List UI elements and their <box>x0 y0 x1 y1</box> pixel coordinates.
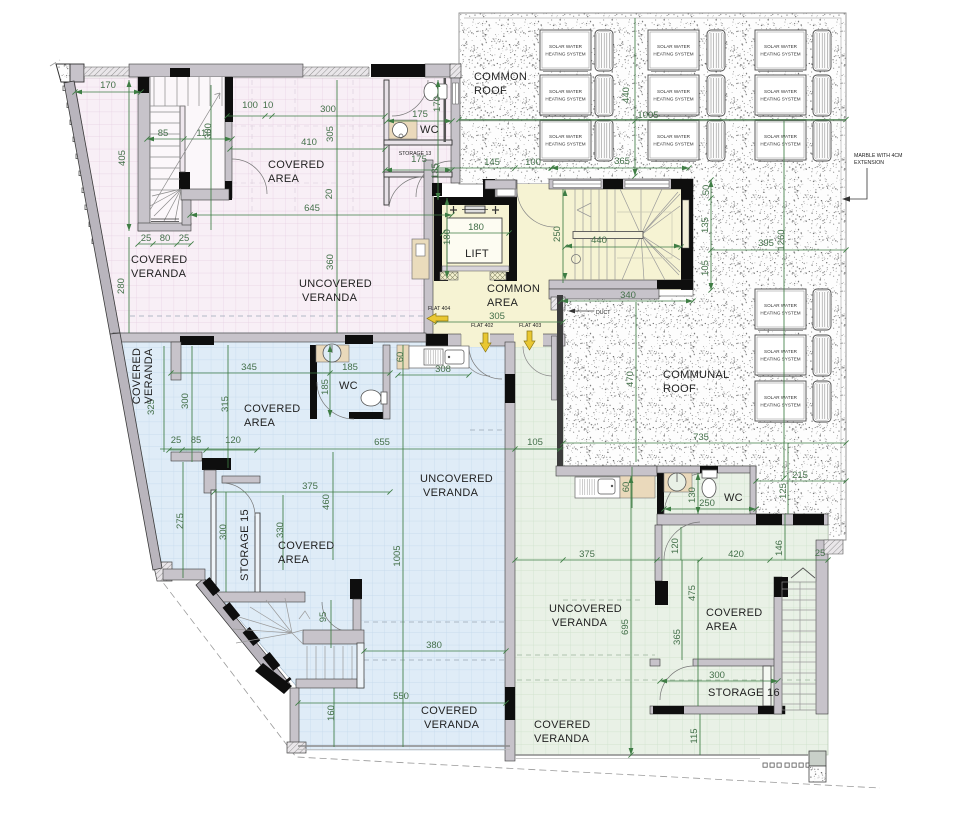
svg-text:250: 250 <box>699 498 715 509</box>
svg-text:95: 95 <box>318 612 329 623</box>
svg-text:300: 300 <box>203 123 214 139</box>
svg-text:50: 50 <box>701 185 712 196</box>
svg-text:EXTENSION: EXTENSION <box>854 160 884 166</box>
svg-text:10: 10 <box>263 100 274 111</box>
svg-text:COMMON: COMMON <box>487 283 540 295</box>
svg-text:AREA: AREA <box>244 417 276 429</box>
svg-text:375: 375 <box>302 481 318 492</box>
svg-text:HEATING SYSTEM: HEATING SYSTEM <box>760 357 800 362</box>
svg-text:185: 185 <box>342 362 358 373</box>
svg-text:COVERED: COVERED <box>706 607 763 619</box>
svg-text:135: 135 <box>700 217 711 233</box>
svg-text:460: 460 <box>321 494 332 510</box>
svg-text:AREA: AREA <box>268 173 300 185</box>
svg-text:420: 420 <box>728 549 744 560</box>
svg-text:VERANDA: VERANDA <box>143 348 155 404</box>
svg-text:HEATING SYSTEM: HEATING SYSTEM <box>545 52 585 57</box>
svg-text:60: 60 <box>395 352 406 363</box>
svg-text:300: 300 <box>709 670 725 681</box>
svg-text:COVERED: COVERED <box>244 403 301 415</box>
svg-text:SOLAR WATER: SOLAR WATER <box>549 134 583 139</box>
svg-text:475: 475 <box>687 585 698 601</box>
svg-text:HEATING SYSTEM: HEATING SYSTEM <box>653 142 693 147</box>
svg-text:175: 175 <box>412 109 428 120</box>
svg-text:WC: WC <box>420 124 439 136</box>
svg-text:735: 735 <box>693 432 709 443</box>
svg-text:STORAGE 13: STORAGE 13 <box>399 151 432 157</box>
svg-text:315: 315 <box>220 396 231 412</box>
svg-text:305: 305 <box>325 126 336 142</box>
svg-text:130: 130 <box>687 487 698 503</box>
svg-text:FLAT 402: FLAT 402 <box>471 323 493 329</box>
svg-text:250: 250 <box>552 226 563 242</box>
svg-text:HEATING SYSTEM: HEATING SYSTEM <box>653 52 693 57</box>
svg-text:300: 300 <box>320 104 336 115</box>
svg-text:146: 146 <box>774 540 785 556</box>
svg-text:AREA: AREA <box>487 297 519 309</box>
svg-text:345: 345 <box>241 362 257 373</box>
svg-text:LIFT: LIFT <box>465 248 489 260</box>
svg-text:170: 170 <box>432 96 443 112</box>
svg-text:275: 275 <box>175 513 186 529</box>
svg-text:655: 655 <box>374 437 390 448</box>
svg-text:25: 25 <box>815 548 826 559</box>
svg-text:COVERED: COVERED <box>131 254 188 266</box>
svg-text:330: 330 <box>275 522 286 538</box>
svg-text:1005: 1005 <box>392 545 403 566</box>
svg-text:280: 280 <box>116 278 127 294</box>
svg-text:120: 120 <box>670 538 681 554</box>
svg-text:80: 80 <box>160 233 171 244</box>
svg-text:185: 185 <box>320 379 331 395</box>
svg-text:365: 365 <box>672 629 683 645</box>
svg-text:100: 100 <box>242 100 258 111</box>
svg-text:MARBLE WITH 4CM: MARBLE WITH 4CM <box>854 153 902 159</box>
svg-text:HEATING SYSTEM: HEATING SYSTEM <box>760 311 800 316</box>
svg-text:WC: WC <box>339 380 358 392</box>
svg-text:305: 305 <box>489 311 505 322</box>
svg-text:UNCOVERED: UNCOVERED <box>549 603 622 615</box>
svg-text:395: 395 <box>758 238 774 249</box>
svg-text:180: 180 <box>468 222 484 233</box>
svg-text:VERANDA: VERANDA <box>424 719 480 731</box>
svg-text:405: 405 <box>117 150 128 166</box>
svg-text:85: 85 <box>158 128 169 139</box>
svg-text:DUCT: DUCT <box>596 310 611 316</box>
svg-text:125: 125 <box>778 483 789 499</box>
svg-text:SOLAR WATER: SOLAR WATER <box>657 44 691 49</box>
svg-text:SOLAR WATER: SOLAR WATER <box>764 395 798 400</box>
svg-text:105: 105 <box>700 260 711 276</box>
svg-text:STORAGE 15: STORAGE 15 <box>239 509 251 581</box>
svg-text:695: 695 <box>620 619 631 635</box>
svg-text:SOLAR WATER: SOLAR WATER <box>657 134 691 139</box>
svg-text:SOLAR WATER: SOLAR WATER <box>764 89 798 94</box>
svg-text:25: 25 <box>179 233 190 244</box>
svg-text:ROOF: ROOF <box>474 85 507 97</box>
svg-text:180: 180 <box>442 229 453 245</box>
svg-text:1260: 1260 <box>776 229 787 250</box>
svg-text:HEATING SYSTEM: HEATING SYSTEM <box>760 403 800 408</box>
svg-text:FLAT 403: FLAT 403 <box>519 323 541 329</box>
svg-text:COMMON: COMMON <box>474 71 527 83</box>
svg-text:308: 308 <box>435 364 451 375</box>
svg-text:470: 470 <box>625 371 636 387</box>
svg-text:UNCOVERED: UNCOVERED <box>420 473 493 485</box>
svg-text:COVERED: COVERED <box>534 719 591 731</box>
svg-text:160: 160 <box>326 705 337 721</box>
svg-text:UNCOVERED: UNCOVERED <box>299 278 372 290</box>
svg-text:145: 145 <box>484 157 500 168</box>
svg-text:COVERED: COVERED <box>421 705 478 717</box>
svg-text:170: 170 <box>100 80 116 91</box>
svg-text:VERANDA: VERANDA <box>552 617 608 629</box>
svg-text:25: 25 <box>141 233 152 244</box>
svg-text:120: 120 <box>225 435 241 446</box>
svg-text:FLAT 404: FLAT 404 <box>428 306 450 312</box>
svg-text:440: 440 <box>591 235 607 246</box>
svg-text:VERANDA: VERANDA <box>423 487 479 499</box>
svg-text:440: 440 <box>621 87 632 103</box>
svg-text:135: 135 <box>430 163 441 179</box>
svg-text:COVERED: COVERED <box>268 159 325 171</box>
svg-text:HEATING SYSTEM: HEATING SYSTEM <box>653 97 693 102</box>
svg-text:105: 105 <box>527 437 543 448</box>
svg-text:380: 380 <box>426 640 442 651</box>
svg-text:COMMUNAL: COMMUNAL <box>663 369 730 381</box>
svg-text:300: 300 <box>218 524 229 540</box>
svg-text:SOLAR WATER: SOLAR WATER <box>764 134 798 139</box>
svg-text:340: 340 <box>620 290 636 301</box>
svg-text:SOLAR WATER: SOLAR WATER <box>764 44 798 49</box>
svg-text:SOLAR WATER: SOLAR WATER <box>657 89 691 94</box>
svg-text:1005: 1005 <box>637 110 658 121</box>
svg-text:375: 375 <box>579 549 595 560</box>
svg-text:HEATING SYSTEM: HEATING SYSTEM <box>545 142 585 147</box>
svg-text:60: 60 <box>621 482 632 493</box>
svg-text:410: 410 <box>301 137 317 148</box>
svg-text:300: 300 <box>180 393 191 409</box>
svg-text:COVERED: COVERED <box>131 348 143 405</box>
svg-text:115: 115 <box>689 728 700 743</box>
svg-text:365: 365 <box>614 156 630 167</box>
svg-text:25: 25 <box>171 435 182 446</box>
svg-text:645: 645 <box>304 203 320 214</box>
svg-text:SOLAR WATER: SOLAR WATER <box>764 303 798 308</box>
svg-text:550: 550 <box>393 691 409 702</box>
svg-text:HEATING SYSTEM: HEATING SYSTEM <box>760 52 800 57</box>
svg-text:VERANDA: VERANDA <box>534 733 590 745</box>
svg-text:COVERED: COVERED <box>278 540 335 552</box>
svg-text:20: 20 <box>324 189 335 200</box>
svg-text:85: 85 <box>191 435 202 446</box>
svg-text:SOLAR WATER: SOLAR WATER <box>764 349 798 354</box>
svg-text:ROOF: ROOF <box>663 383 696 395</box>
svg-text:SOLAR WATER: SOLAR WATER <box>549 89 583 94</box>
svg-text:VERANDA: VERANDA <box>302 292 358 304</box>
svg-text:WC: WC <box>724 492 743 504</box>
svg-text:360: 360 <box>325 254 336 270</box>
svg-text:AREA: AREA <box>706 621 738 633</box>
svg-text:HEATING SYSTEM: HEATING SYSTEM <box>760 97 800 102</box>
svg-text:HEATING SYSTEM: HEATING SYSTEM <box>545 97 585 102</box>
svg-text:STORAGE 16: STORAGE 16 <box>708 687 780 699</box>
svg-text:AREA: AREA <box>278 554 310 566</box>
svg-text:VERANDA: VERANDA <box>131 268 187 280</box>
svg-text:HEATING SYSTEM: HEATING SYSTEM <box>760 142 800 147</box>
svg-text:SOLAR WATER: SOLAR WATER <box>549 44 583 49</box>
svg-text:215: 215 <box>792 470 808 481</box>
svg-text:100: 100 <box>525 157 541 168</box>
